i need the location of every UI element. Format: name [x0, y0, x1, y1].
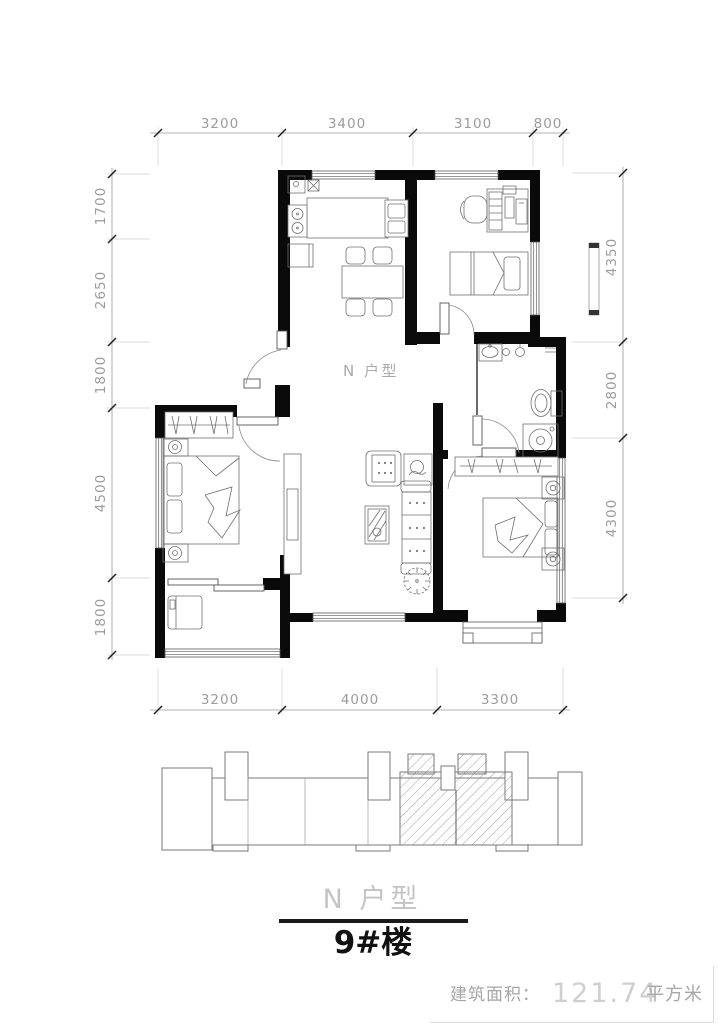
bathroom-door: [473, 416, 519, 453]
dim-right-2: 2800: [604, 371, 620, 409]
master-bedroom-furniture: [163, 412, 240, 562]
dimension-top: 3200 3400 3100 800: [150, 116, 570, 166]
study-furniture: [450, 186, 528, 295]
bay-window: [463, 622, 542, 643]
dim-left-2: 2650: [93, 271, 109, 309]
dim-right-1: 4350: [604, 238, 620, 276]
dim-left-4: 4500: [93, 474, 109, 512]
building-title: 9#楼: [334, 925, 413, 961]
floor-plan-page: 3200 3400 3100 800 1700 2650 1800 4500 1…: [0, 0, 724, 1024]
plan-room-label: N 户型: [343, 362, 399, 380]
kitchen-furniture: [288, 176, 408, 316]
dim-top-4: 800: [534, 116, 563, 132]
area-caption: 建筑面积： 121.74 平方米: [430, 966, 714, 1023]
dim-bottom-1: 3200: [201, 692, 239, 708]
dim-top-2: 3400: [328, 116, 366, 132]
key-plan-highlighted-unit: [400, 754, 512, 845]
dim-left-3: 1800: [93, 356, 109, 394]
living-room-furniture: [284, 451, 432, 594]
dimension-left: 1700 2650 1800 4500 1800: [93, 168, 150, 660]
area-caption-value: 121.74: [552, 978, 658, 1009]
dim-bottom-3: 3300: [481, 692, 519, 708]
dimension-right: 4350 2800 4300: [572, 167, 628, 604]
entry-door: [244, 331, 287, 388]
master-bedroom-door: [237, 417, 280, 461]
doors: [168, 303, 519, 591]
dim-left-5: 1800: [93, 598, 109, 636]
key-plan-label: N 户型: [323, 884, 422, 915]
key-plan: [162, 752, 582, 851]
balcony-furniture: [168, 596, 202, 629]
ac-platform: [589, 243, 599, 315]
dimension-bottom: 3200 4000 3300: [150, 668, 570, 715]
dim-top-3: 3100: [454, 116, 492, 132]
dim-top-1: 3200: [201, 116, 239, 132]
bedroom2-furniture: [455, 457, 564, 570]
area-caption-unit: 平方米: [646, 984, 703, 1005]
balcony-sliding-door: [168, 579, 264, 591]
bathroom-furniture: [477, 344, 562, 457]
title-underline: [279, 919, 468, 923]
dim-right-3: 4300: [604, 499, 620, 537]
floor-plan-drawing: 3200 3400 3100 800 1700 2650 1800 4500 1…: [0, 0, 724, 1024]
dim-left-1: 1700: [93, 187, 109, 225]
study-door: [440, 303, 474, 335]
dim-bottom-2: 4000: [341, 692, 379, 708]
area-caption-prefix: 建筑面积：: [450, 985, 540, 1005]
